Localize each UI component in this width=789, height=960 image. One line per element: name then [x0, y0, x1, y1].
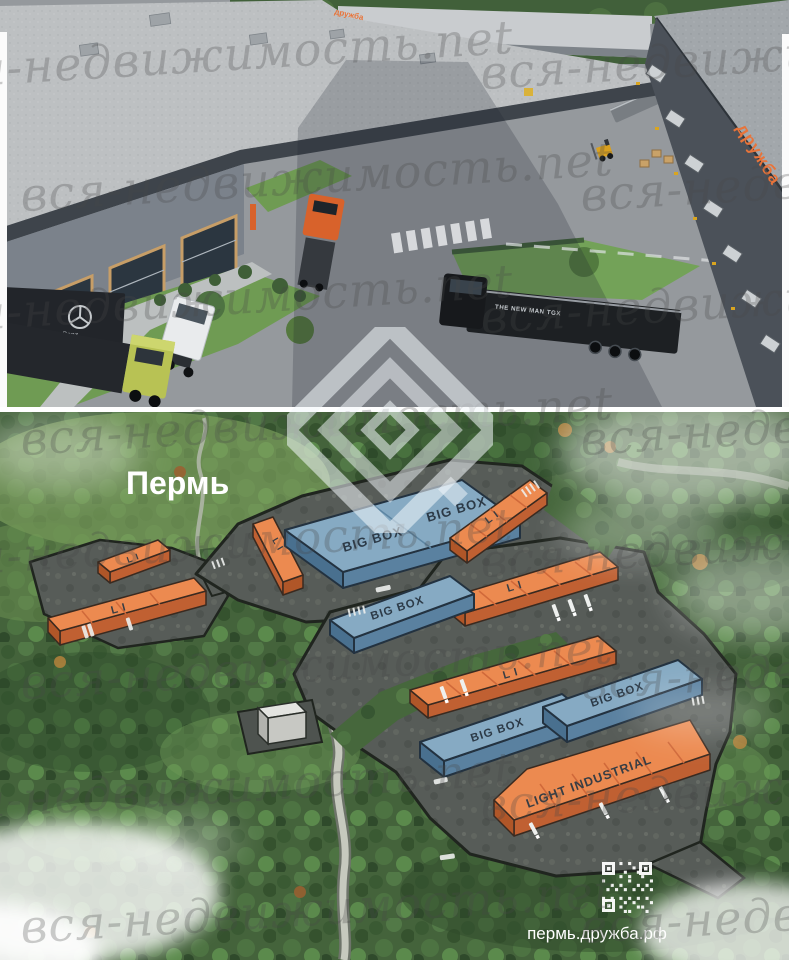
masterplan-render: L I L I L I BIG BOX BIG BOX L I L I [0, 412, 789, 960]
warehouse-yard-render: дружба дружба [0, 0, 789, 407]
left-margin-sliver [0, 32, 7, 407]
right-margin-sliver [782, 34, 789, 407]
real-estate-composite-image: дружба дружба [0, 0, 789, 960]
yellow-crate [524, 88, 533, 96]
city-label: Пермь [126, 465, 229, 501]
site-url: пермь.дружба.рф [527, 924, 667, 943]
orange-pylon-sign [250, 204, 256, 230]
